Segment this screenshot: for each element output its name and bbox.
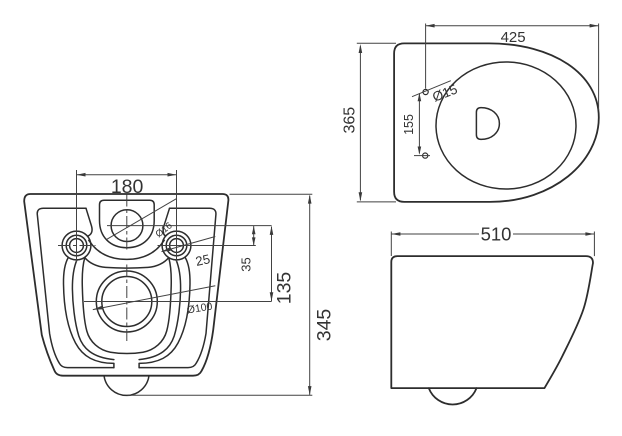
svg-text:25: 25 — [194, 251, 211, 269]
svg-text:345: 345 — [313, 309, 335, 342]
svg-text:510: 510 — [481, 223, 512, 244]
svg-text:35: 35 — [239, 257, 254, 271]
svg-text:155: 155 — [402, 114, 416, 135]
svg-text:425: 425 — [501, 29, 526, 46]
svg-text:365: 365 — [341, 107, 358, 134]
svg-text:135: 135 — [273, 272, 295, 305]
svg-text:180: 180 — [111, 176, 144, 198]
